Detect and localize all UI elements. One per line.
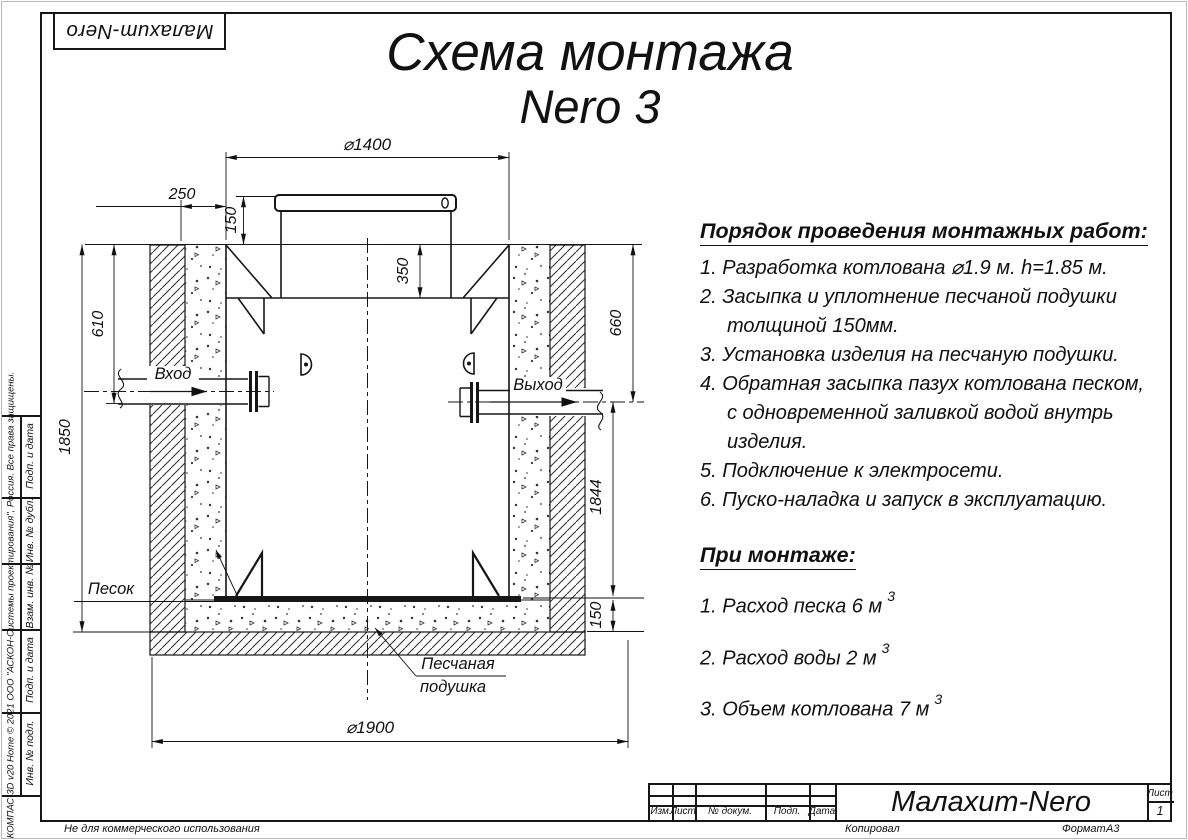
sand-label: Песок (88, 580, 135, 598)
installation-instructions: Порядок проведения монтажных работ: 1. Р… (700, 219, 1182, 515)
bottom-rib-right (473, 553, 499, 596)
cushion-label-line2: подушка (420, 678, 486, 696)
montage-line: 2. Расход воды 2 м3 (700, 630, 1182, 682)
instructions-heading: Порядок проведения монтажных работ: (700, 219, 1148, 246)
dim-label-660: 660 (608, 310, 625, 337)
dim-label-350: 350 (395, 258, 412, 285)
tank-shoulder-left (226, 245, 272, 298)
stamp-cell-inv-podl: Инв. № подл. (24, 720, 36, 785)
software-credit: КОМПАС-3D v20 Home © 2021 ООО "АСКОН-Сис… (6, 372, 17, 839)
montage-notes: При монтаже: 1. Расход песка 6 м3 2. Рас… (700, 543, 1182, 733)
drawing-sheet: Малахит-Nero Схема монтажа Nero 3 (0, 0, 1188, 840)
tb-product-name: Малахит-Nero (835, 785, 1147, 820)
stamp-cell-inv-dubl: Инв. № дубл. (24, 498, 36, 563)
bottom-rib-left (236, 553, 262, 596)
instruction-line: с одновременной заливкой водой внутрь (700, 399, 1182, 428)
sand-backfill-left (185, 245, 226, 600)
non-commercial-notice: Не для коммерческого использования (64, 823, 260, 835)
tank-lid (275, 195, 456, 211)
stamp-cell-vzam-inv: Взам. инв. № (24, 564, 36, 629)
instruction-line: 2. Засыпка и уплотнение песчаной подушки (700, 283, 1182, 312)
montage-line: 1. Расход песка 6 м3 (700, 578, 1182, 630)
dim-label-150-bottom: 150 (588, 602, 605, 629)
title-block: Изм. Лист № докум. Подп. Дата Малахит-Ne… (648, 783, 1172, 822)
inlet-fitting-dot (304, 363, 308, 367)
copied-label: Копировал (845, 823, 900, 835)
instructions-list: 1. Разработка котлована ⌀1.9 м. h=1.85 м… (700, 254, 1182, 515)
format-value: А3 (1106, 823, 1119, 835)
montage-list: 1. Расход песка 6 м3 2. Расход воды 2 м3… (700, 578, 1182, 733)
instruction-line: толщиной 150мм. (700, 312, 1182, 341)
cushion-label-line1: Песчаная (421, 655, 495, 673)
montage-heading: При монтаже: (700, 543, 856, 570)
instruction-line: 6. Пуско-наладка и запуск в эксплуатацию… (700, 486, 1182, 515)
dim-label-1900: ⌀1900 (346, 718, 395, 737)
tb-col-podp: Подп. (774, 806, 801, 817)
gusset-left (238, 298, 264, 334)
tb-sheet-label: Лист (1147, 788, 1173, 799)
dim-label-1400: ⌀1400 (343, 135, 392, 154)
lid-handle (442, 198, 448, 208)
sand-backfill-right (509, 245, 550, 600)
dim-label-150-top: 150 (223, 207, 240, 234)
tb-col-list: Лист (670, 806, 696, 817)
outlet-fitting-dot (467, 362, 471, 366)
pit-wall-left (150, 245, 185, 632)
stamp-cell-podp-data-1: Подп. и дата (24, 423, 36, 489)
instruction-line: 3. Установка изделия на песчаную подушки… (700, 341, 1182, 370)
pit-wall-right (550, 245, 585, 632)
stamp-cell-podp-data-2: Подп. и дата (24, 637, 36, 703)
instruction-line: 5. Подключение к электросети. (700, 457, 1182, 486)
dim-label-1850: 1850 (57, 419, 74, 455)
instruction-line: изделия. (700, 428, 1182, 457)
tank-shoulder-right (463, 245, 509, 298)
dim-label-610: 610 (90, 311, 107, 338)
gusset-right (471, 298, 497, 334)
tb-sheet-number: 1 (1157, 804, 1164, 818)
instruction-line: 4. Обратная засыпка пазух котлована песк… (700, 370, 1182, 399)
tb-col-izm: Изм. (650, 806, 671, 817)
tb-col-data: Дата (809, 806, 835, 817)
outlet-label: Выход (513, 376, 563, 394)
dim-label-250: 250 (168, 186, 196, 203)
inlet-label: Вход (155, 365, 192, 383)
montage-line: 3. Объем котлована 7 м3 (700, 681, 1182, 733)
format-label: Формат (1062, 823, 1106, 835)
dim-label-1844: 1844 (588, 479, 605, 515)
tb-col-doc: № докум. (708, 806, 752, 817)
instruction-line: 1. Разработка котлована ⌀1.9 м. h=1.85 м… (700, 254, 1182, 283)
